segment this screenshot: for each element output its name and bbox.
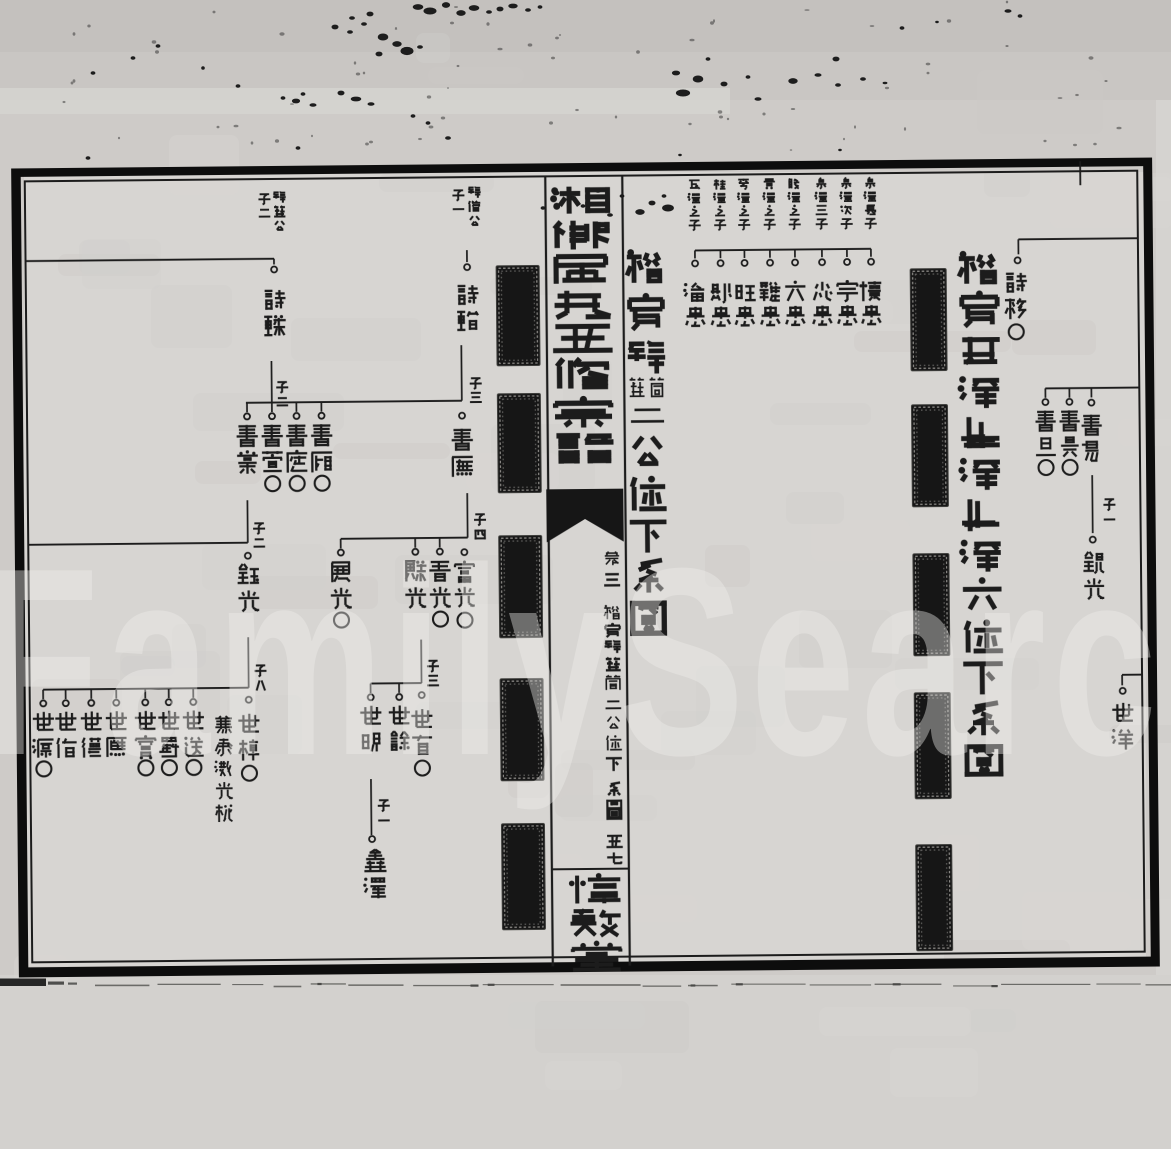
svg-text:FamilySearch: FamilySearch [0,512,1171,810]
